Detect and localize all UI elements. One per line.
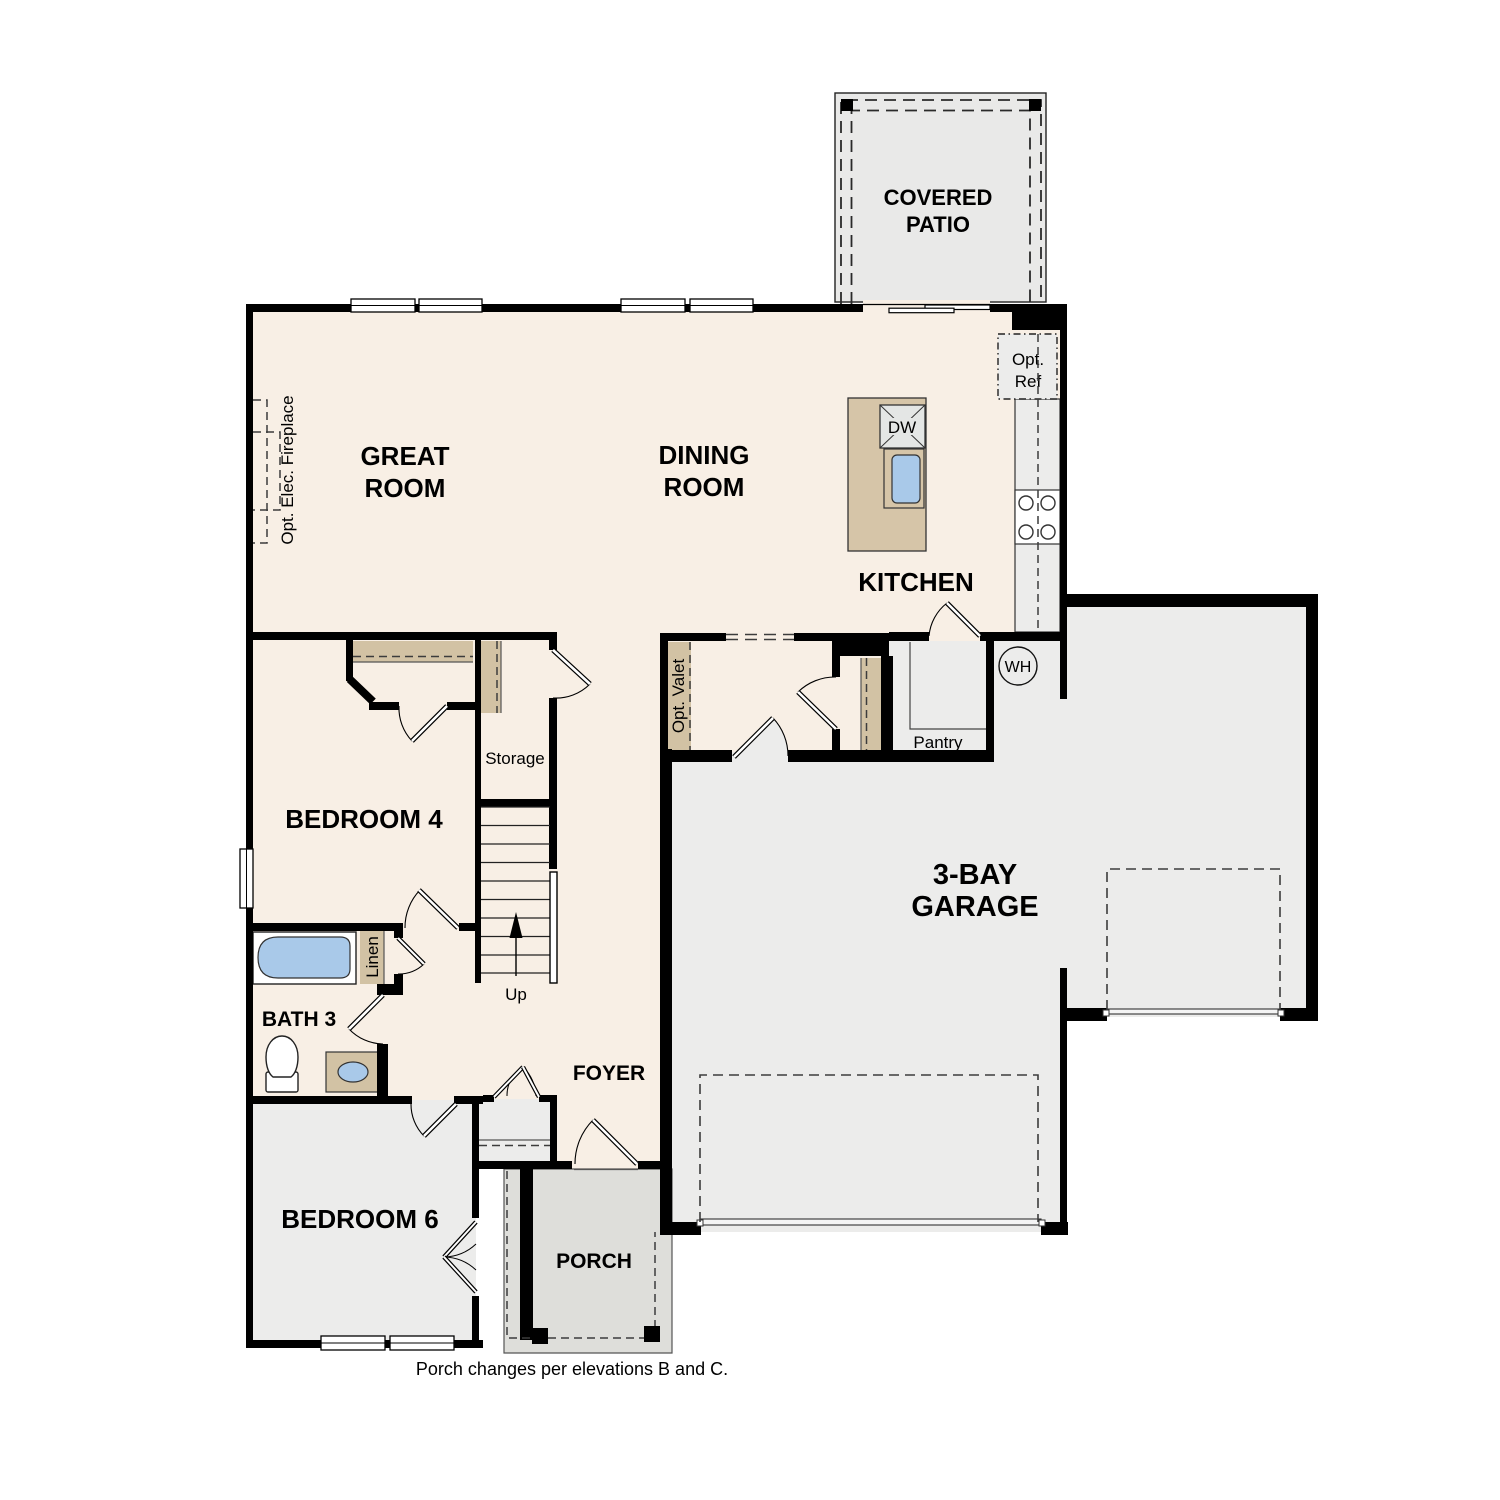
svg-text:FOYER: FOYER: [573, 1062, 645, 1085]
svg-text:Pantry: Pantry: [913, 733, 963, 752]
svg-text:Opt. Valet: Opt. Valet: [669, 659, 688, 734]
svg-text:PATIO: PATIO: [906, 212, 970, 237]
svg-text:Up: Up: [505, 985, 527, 1004]
svg-text:ROOM: ROOM: [664, 472, 745, 502]
svg-text:3-BAY: 3-BAY: [933, 859, 1017, 891]
svg-text:DINING: DINING: [659, 440, 750, 470]
svg-text:BEDROOM 4: BEDROOM 4: [285, 804, 443, 834]
svg-text:KITCHEN: KITCHEN: [858, 567, 974, 597]
svg-text:ROOM: ROOM: [365, 473, 446, 503]
svg-text:Porch changes per elevations B: Porch changes per elevations B and C.: [416, 1359, 728, 1379]
svg-text:Linen: Linen: [363, 936, 382, 978]
svg-text:GREAT: GREAT: [360, 441, 449, 471]
svg-text:DW: DW: [888, 418, 916, 437]
svg-text:COVERED: COVERED: [884, 185, 993, 210]
svg-text:BEDROOM 6: BEDROOM 6: [281, 1204, 438, 1234]
svg-text:GARAGE: GARAGE: [911, 891, 1038, 923]
svg-text:Storage: Storage: [485, 749, 545, 768]
svg-text:Opt.: Opt.: [1012, 350, 1044, 369]
svg-text:PORCH: PORCH: [556, 1250, 632, 1273]
svg-text:WH: WH: [1005, 659, 1032, 676]
svg-text:Opt. Elec. Fireplace: Opt. Elec. Fireplace: [278, 395, 297, 544]
svg-text:BATH 3: BATH 3: [262, 1008, 336, 1031]
